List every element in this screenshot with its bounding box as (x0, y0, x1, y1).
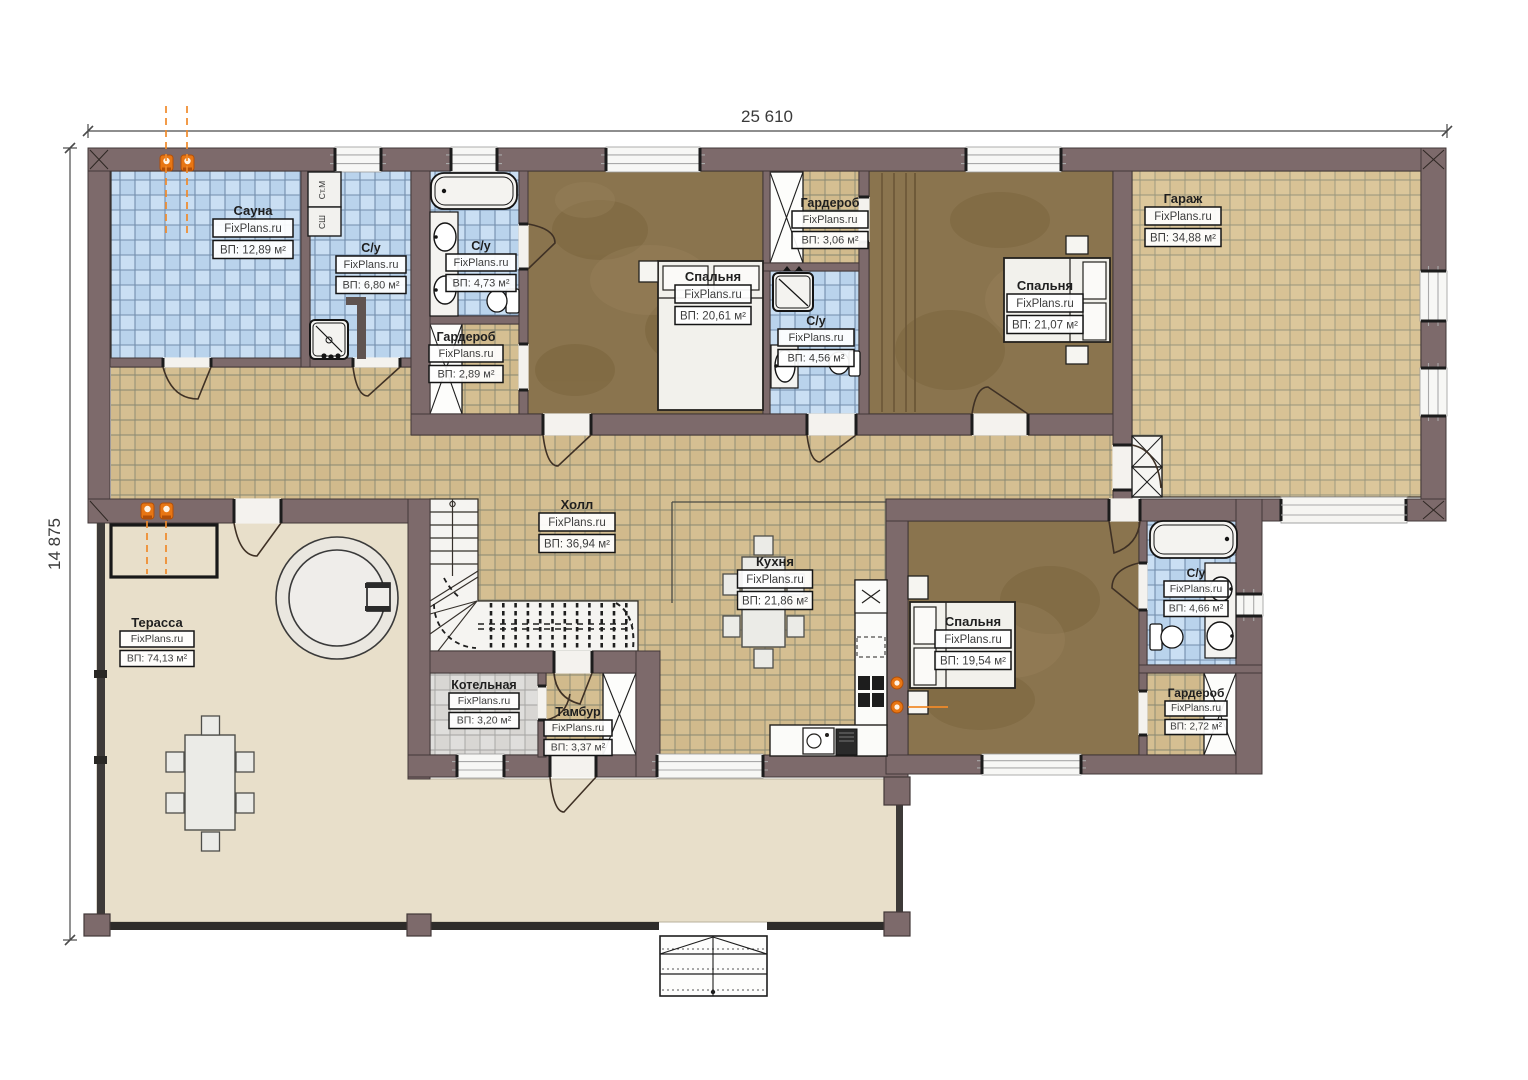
svg-text:Холл: Холл (561, 497, 594, 512)
svg-text:FixPlans.ru: FixPlans.ru (224, 223, 282, 235)
svg-text:FixPlans.ru: FixPlans.ru (802, 214, 857, 226)
svg-text:СШ: СШ (317, 215, 327, 229)
svg-text:FixPlans.ru: FixPlans.ru (1154, 211, 1212, 223)
svg-text:Гардероб: Гардероб (436, 330, 495, 344)
svg-text:ВП: 2,72 м²: ВП: 2,72 м² (1170, 722, 1223, 733)
svg-text:ВП: 3,37 м²: ВП: 3,37 м² (551, 742, 606, 754)
svg-text:Терасса: Терасса (131, 615, 183, 630)
svg-text:Гардероб: Гардероб (1168, 686, 1225, 700)
svg-text:Кухня: Кухня (756, 554, 794, 569)
svg-text:FixPlans.ru: FixPlans.ru (552, 722, 605, 734)
svg-text:Гараж: Гараж (1164, 191, 1204, 206)
svg-text:ВП: 19,54 м²: ВП: 19,54 м² (940, 656, 1006, 668)
svg-text:FixPlans.ru: FixPlans.ru (343, 259, 398, 271)
svg-text:FixPlans.ru: FixPlans.ru (453, 257, 508, 269)
svg-text:ВП: 20,61 м²: ВП: 20,61 м² (680, 311, 746, 323)
svg-text:25 610: 25 610 (741, 107, 793, 126)
svg-text:ВП: 6,80 м²: ВП: 6,80 м² (342, 280, 399, 292)
svg-text:Сауна: Сауна (233, 203, 273, 218)
svg-text:Котельная: Котельная (451, 678, 516, 692)
svg-text:ВП: 74,13 м²: ВП: 74,13 м² (127, 653, 188, 665)
svg-text:FixPlans.ru: FixPlans.ru (684, 289, 742, 301)
svg-text:Ст.М: Ст.М (317, 181, 327, 200)
svg-text:ВП: 36,94 м²: ВП: 36,94 м² (544, 539, 610, 551)
svg-text:FixPlans.ru: FixPlans.ru (548, 517, 606, 529)
svg-text:ВП: 2,89 м²: ВП: 2,89 м² (437, 369, 494, 381)
svg-text:С/у: С/у (1187, 566, 1206, 580)
svg-text:С/у: С/у (471, 239, 491, 253)
svg-text:Спальня: Спальня (1017, 278, 1073, 293)
svg-text:FixPlans.ru: FixPlans.ru (458, 695, 511, 707)
svg-text:ВП: 3,06 м²: ВП: 3,06 м² (801, 235, 858, 247)
svg-text:ВП: 4,73 м²: ВП: 4,73 м² (452, 278, 509, 290)
svg-text:С/у: С/у (361, 241, 381, 255)
svg-text:FixPlans.ru: FixPlans.ru (788, 332, 843, 344)
svg-text:ВП: 4,66 м²: ВП: 4,66 м² (1169, 603, 1224, 615)
svg-text:FixPlans.ru: FixPlans.ru (1016, 298, 1074, 310)
svg-text:FixPlans.ru: FixPlans.ru (1170, 583, 1223, 595)
svg-text:FixPlans.ru: FixPlans.ru (944, 634, 1002, 646)
svg-text:FixPlans.ru: FixPlans.ru (746, 574, 804, 586)
svg-text:FixPlans.ru: FixPlans.ru (131, 633, 184, 645)
svg-text:Тамбур: Тамбур (555, 705, 601, 719)
svg-text:ВП: 21,07 м²: ВП: 21,07 м² (1012, 320, 1078, 332)
svg-text:ВП: 3,20 м²: ВП: 3,20 м² (457, 715, 512, 727)
svg-text:14 875: 14 875 (45, 518, 64, 570)
svg-text:ВП: 12,89 м²: ВП: 12,89 м² (220, 245, 286, 257)
svg-text:Спальня: Спальня (685, 269, 741, 284)
svg-text:FixPlans.ru: FixPlans.ru (1171, 703, 1221, 714)
svg-text:FixPlans.ru: FixPlans.ru (438, 348, 493, 360)
svg-text:Гардероб: Гардероб (800, 196, 859, 210)
svg-text:ВП: 21,86 м²: ВП: 21,86 м² (742, 596, 808, 608)
svg-text:ВП: 34,88 м²: ВП: 34,88 м² (1150, 233, 1216, 245)
svg-text:С/у: С/у (806, 314, 826, 328)
svg-text:Спальня: Спальня (945, 614, 1001, 629)
svg-text:ВП: 4,56 м²: ВП: 4,56 м² (787, 353, 844, 365)
